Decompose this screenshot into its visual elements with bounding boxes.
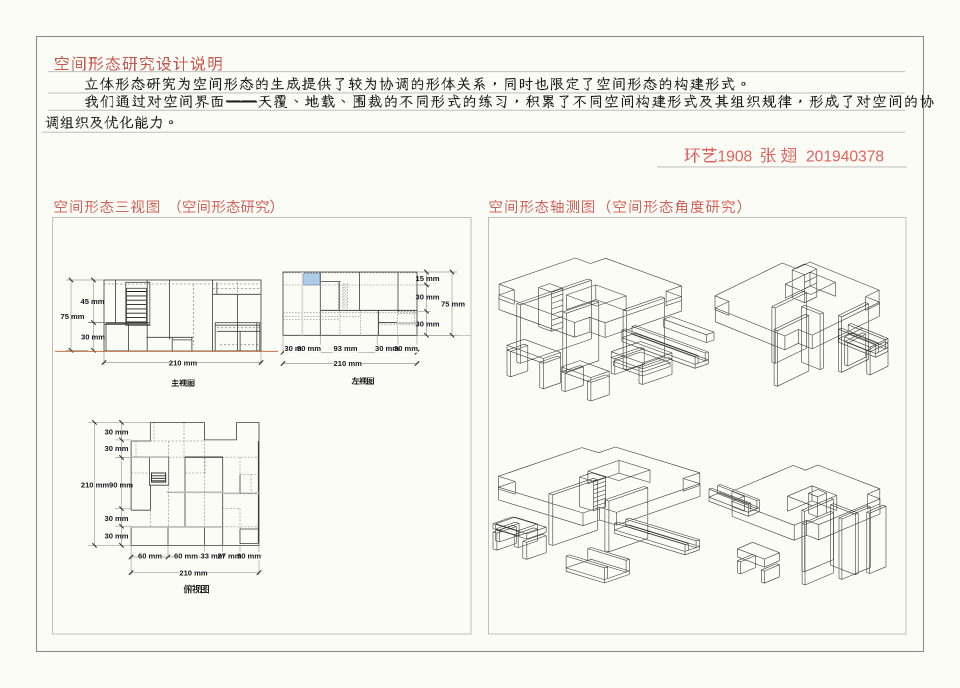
svg-text:30 mm: 30 mm (104, 428, 128, 437)
svg-text:30 mm: 30 mm (394, 344, 418, 353)
svg-text:60 mm: 60 mm (174, 551, 198, 560)
svg-text:210 mm: 210 mm (334, 359, 363, 368)
svg-text:210 mm: 210 mm (179, 568, 208, 577)
svg-text:90 mm: 90 mm (109, 480, 133, 489)
svg-text:30 mm: 30 mm (104, 532, 128, 541)
svg-text:30 mm: 30 mm (237, 551, 261, 560)
svg-text:30 mm: 30 mm (415, 320, 439, 329)
svg-text:80 mm: 80 mm (297, 344, 321, 353)
svg-text:93 mm: 93 mm (333, 344, 357, 353)
svg-text:30 mm: 30 mm (81, 332, 105, 341)
svg-text:1908: 1908 (718, 149, 753, 166)
svg-text:30 mm: 30 mm (104, 444, 128, 453)
svg-text:75 mm: 75 mm (441, 299, 465, 308)
svg-text:30 mm: 30 mm (104, 514, 128, 523)
svg-text:210 mm: 210 mm (81, 480, 110, 489)
svg-text:30 mm: 30 mm (415, 293, 439, 302)
svg-text:75 mm: 75 mm (60, 312, 84, 321)
svg-text:60 mm: 60 mm (138, 551, 162, 560)
svg-text:15 mm: 15 mm (415, 274, 439, 283)
svg-text:210 mm: 210 mm (169, 358, 198, 367)
svg-text:45 mm: 45 mm (80, 297, 104, 306)
svg-text:201940378: 201940378 (806, 149, 884, 166)
